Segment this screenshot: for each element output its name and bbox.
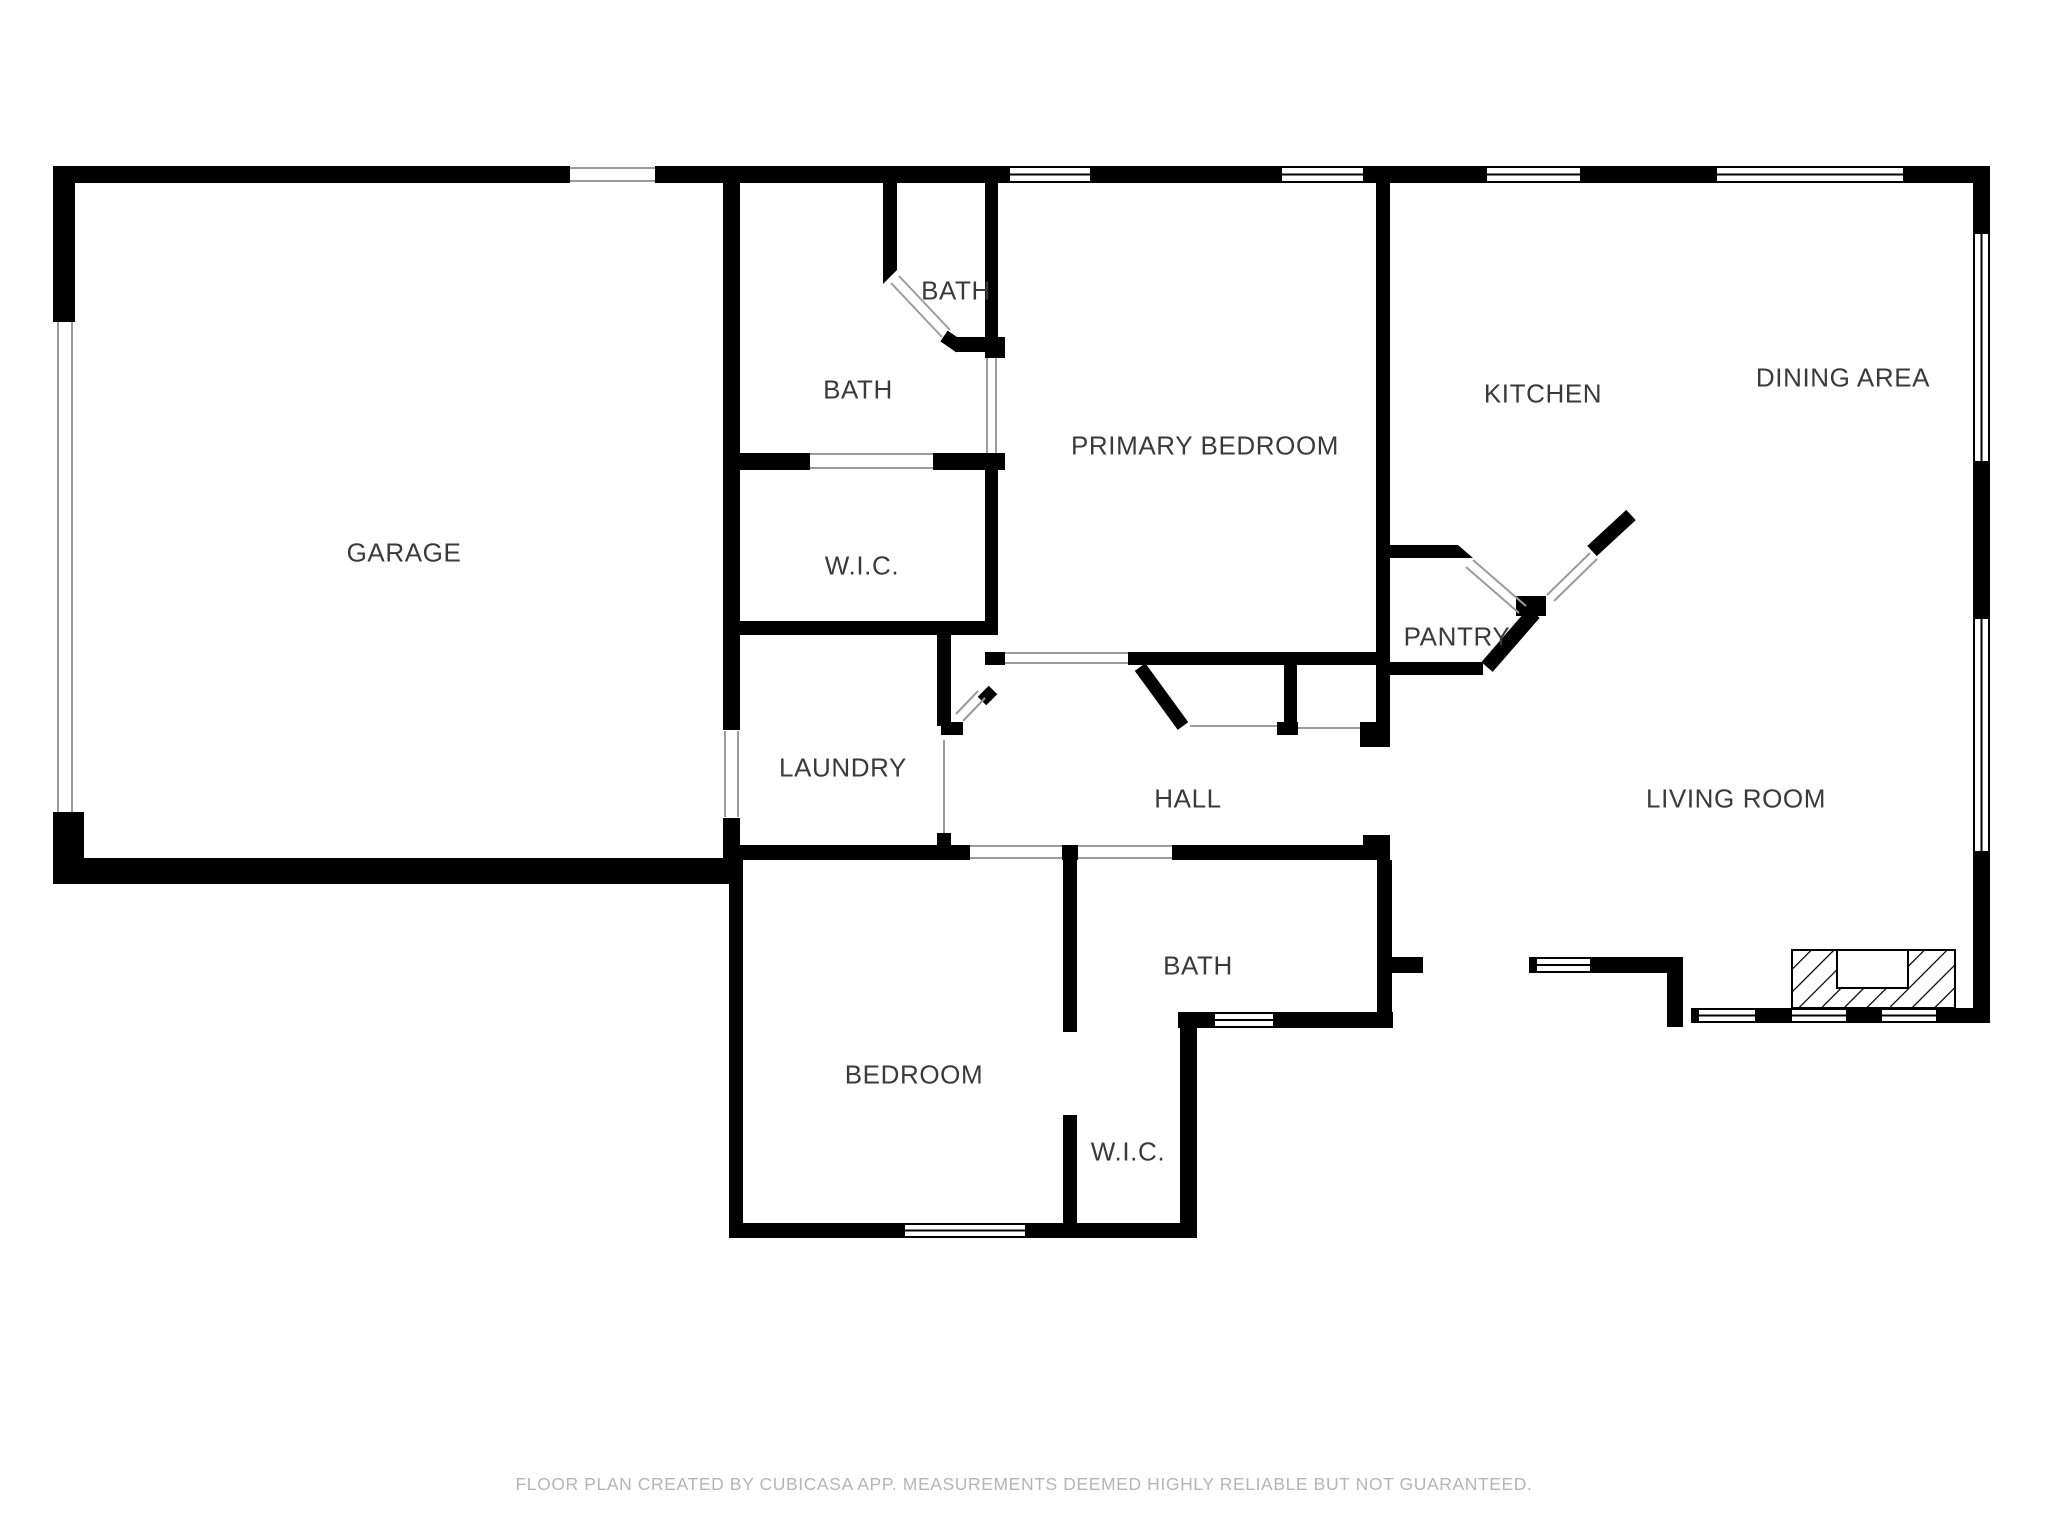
room-label-dining-area: DINING AREA <box>1756 363 1930 394</box>
primary-bedroom-door-leaf <box>1140 667 1183 726</box>
window <box>1480 167 1587 182</box>
window <box>1974 612 1989 858</box>
room-label-bath-toilet: BATH <box>921 276 991 307</box>
room-label-bedroom: BEDROOM <box>845 1060 984 1091</box>
windows <box>898 167 1989 1237</box>
room-label-bath-hall: BATH <box>1163 951 1233 982</box>
room-label-living-room: LIVING ROOM <box>1646 784 1826 815</box>
footer-disclaimer: FLOOR PLAN CREATED BY CUBICASA APP. MEAS… <box>0 1474 2048 1495</box>
walls <box>53 166 1990 1238</box>
window <box>1208 1013 1280 1027</box>
window <box>1530 958 1597 972</box>
room-label-kitchen: KITCHEN <box>1484 379 1602 410</box>
floor-plan-drawing <box>0 0 2048 1536</box>
room-label-wic-bedroom: W.I.C. <box>1091 1137 1165 1168</box>
window <box>1003 167 1097 182</box>
window <box>1785 1009 1853 1022</box>
kitchen-door-leaf <box>1592 515 1631 551</box>
window <box>1692 1009 1762 1022</box>
room-label-wic-primary: W.I.C. <box>825 551 899 582</box>
window <box>1710 167 1910 182</box>
room-label-primary-bedroom: PRIMARY BEDROOM <box>1071 431 1339 462</box>
fireplace <box>1792 950 1955 1008</box>
room-label-laundry: LAUNDRY <box>779 753 907 784</box>
window <box>1275 167 1370 182</box>
room-label-garage: GARAGE <box>347 538 462 569</box>
room-label-hall: HALL <box>1154 784 1221 815</box>
window <box>1974 227 1989 468</box>
floor-plan-page: GARAGE BATH BATH W.I.C. LAUNDRY PRIMARY … <box>0 0 2048 1536</box>
window <box>898 1224 1032 1237</box>
window <box>1875 1009 1943 1022</box>
room-label-pantry: PANTRY <box>1404 622 1511 653</box>
room-label-bath-main: BATH <box>823 375 893 406</box>
